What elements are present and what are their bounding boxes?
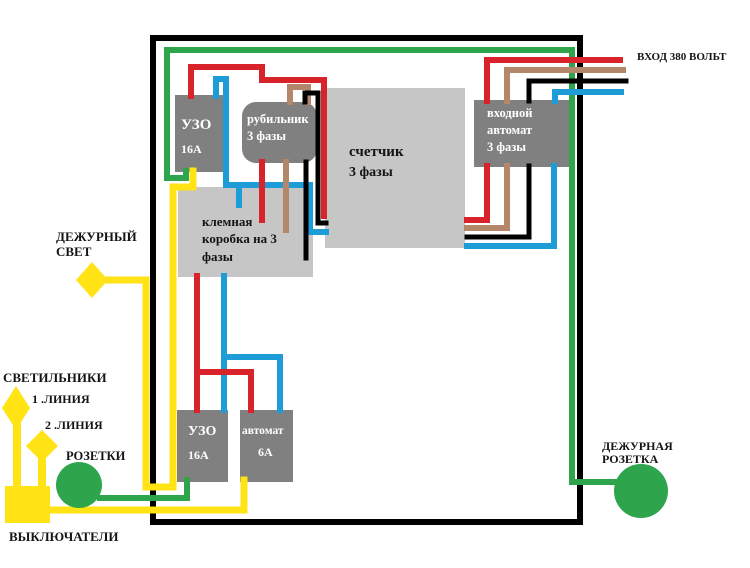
wire-blue-breaker-to-meter bbox=[467, 166, 554, 246]
switches-square bbox=[5, 486, 50, 523]
switches-label: ВЫКЛЮЧАТЕЛИ bbox=[9, 530, 118, 545]
wiring-diagram: УЗО 16А рубильник 3 фазы счетчик 3 фазы … bbox=[0, 0, 750, 568]
sockets-label: РОЗЕТКИ bbox=[66, 449, 125, 463]
standby-socket-label-line1: ДЕЖУРНАЯ bbox=[602, 440, 673, 453]
wire-yellow-uzo-to-standby-light bbox=[106, 171, 193, 487]
standby-socket-circle bbox=[614, 464, 668, 518]
wire-green-uzo-to-standby-socket bbox=[167, 50, 618, 482]
input-voltage-label: ВХОД 380 ВОЛЬТ bbox=[637, 51, 726, 63]
standby-socket-label: ДЕЖУРНАЯ РОЗЕТКА bbox=[602, 440, 673, 467]
standby-light-label-line2: СВЕТ bbox=[56, 245, 137, 260]
wire-red-breaker-to-meter bbox=[467, 166, 487, 220]
lamp-line1-diamond bbox=[2, 386, 30, 430]
wires-layer bbox=[0, 0, 750, 568]
wire-blue-input bbox=[555, 92, 621, 101]
line1-label: 1 .ЛИНИЯ bbox=[32, 393, 90, 406]
lamps-label: СВЕТИЛЬНИКИ bbox=[3, 371, 107, 386]
wire-brown-input bbox=[507, 70, 623, 101]
lamp-line2-diamond bbox=[26, 430, 58, 462]
standby-light-label: ДЕЖУРНЫЙ СВЕТ bbox=[56, 230, 137, 259]
standby-socket-label-line2: РОЗЕТКА bbox=[602, 453, 673, 466]
line2-label: 2 .ЛИНИЯ bbox=[45, 419, 103, 432]
sockets-circle bbox=[56, 462, 102, 508]
standby-light-label-line1: ДЕЖУРНЫЙ bbox=[56, 230, 137, 245]
standby-light-diamond bbox=[76, 262, 108, 298]
